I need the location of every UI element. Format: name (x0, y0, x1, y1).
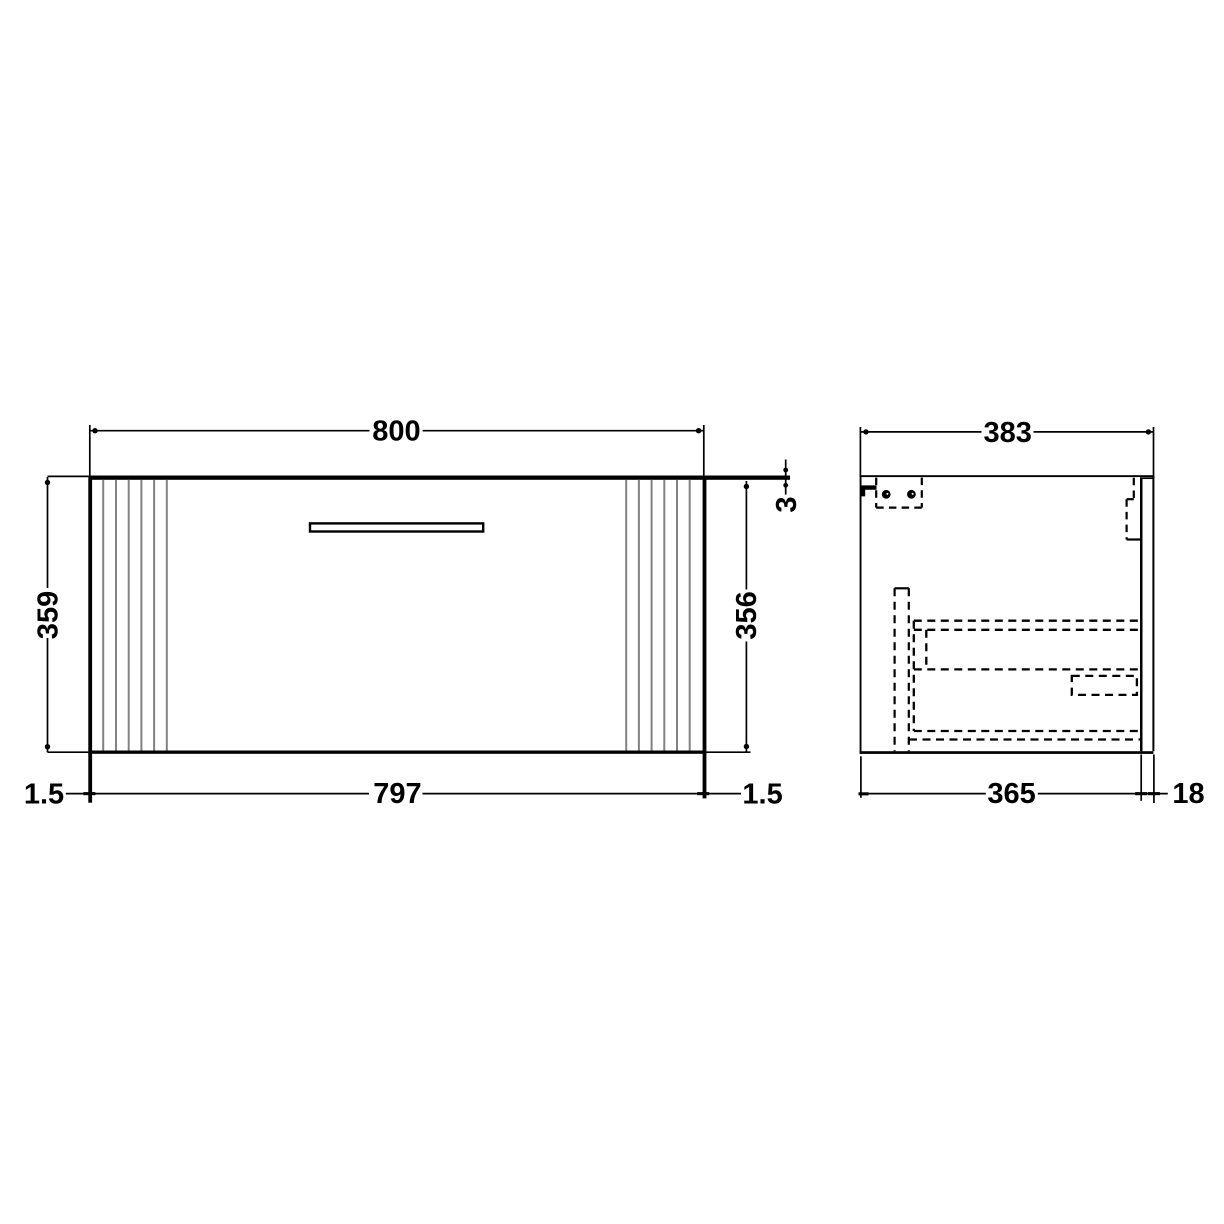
svg-text:1.5: 1.5 (742, 778, 782, 810)
svg-text:1.5: 1.5 (24, 778, 64, 810)
svg-text:3: 3 (771, 496, 803, 512)
svg-text:365: 365 (987, 778, 1035, 810)
svg-text:383: 383 (984, 417, 1032, 449)
svg-text:797: 797 (373, 778, 421, 810)
svg-text:359: 359 (32, 591, 64, 639)
svg-text:356: 356 (731, 591, 763, 639)
svg-text:18: 18 (1172, 778, 1204, 810)
svg-text:800: 800 (372, 416, 420, 448)
